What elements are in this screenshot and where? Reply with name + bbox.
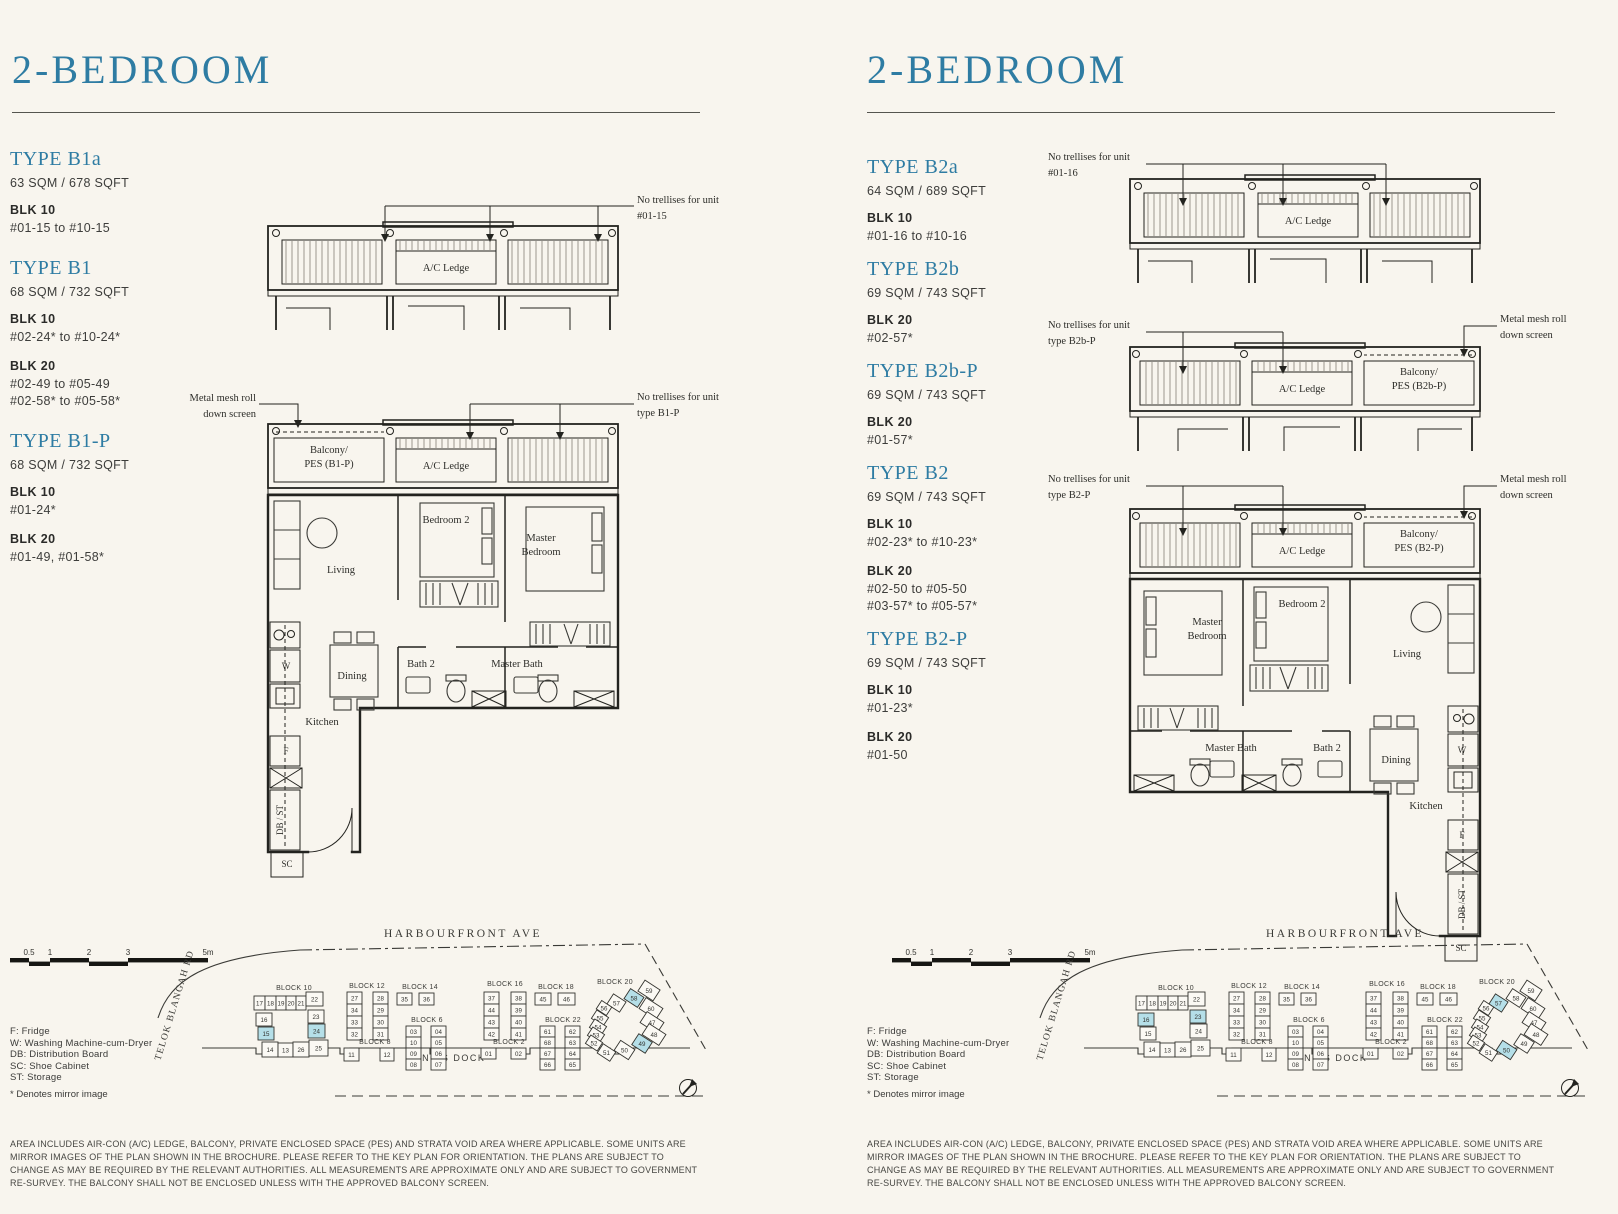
legend-line: ST: Storage xyxy=(10,1072,152,1084)
keyplan-unit-number: 60 xyxy=(1530,1006,1537,1013)
keyplan-block-label: BLOCK 2 xyxy=(493,1039,525,1046)
keyplan-block-label: BLOCK 20 xyxy=(597,979,633,986)
keyplan-unit-number: 09 xyxy=(1292,1051,1299,1058)
keyplan-unit-number: 46 xyxy=(563,996,570,1003)
keyplan-unit-number: 44 xyxy=(1370,1007,1377,1014)
room-label-master-bath: Master Bath xyxy=(1205,743,1257,754)
room-label-balcony: Balcony/ xyxy=(1400,529,1438,540)
room-label-balcony: Balcony/ xyxy=(1400,367,1438,378)
keyplan-unit-number: 21 xyxy=(298,1000,305,1007)
keyplan-unit-number: 31 xyxy=(1259,1031,1266,1038)
keyplan-unit-number: 35 xyxy=(1283,996,1290,1003)
keyplan-unit-number: 66 xyxy=(544,1062,551,1069)
keyplan-unit-number: 65 xyxy=(569,1062,576,1069)
keyplan-unit-number: 62 xyxy=(569,1029,576,1036)
room-label-kitchen: Kitchen xyxy=(305,717,339,728)
keyplan-unit-number: 11 xyxy=(348,1052,355,1059)
keyplan-block-label: BLOCK 10 xyxy=(276,985,312,992)
keyplan-unit-number: 24 xyxy=(1195,1028,1202,1035)
keyplan-unit-number: 67 xyxy=(1426,1051,1433,1058)
keyplan-unit-number: 12 xyxy=(1266,1052,1273,1059)
page-2bedroom-b1: 2-BEDROOM TYPE B1a63 SQM / 678 SQFTBLK 1… xyxy=(0,0,809,1214)
keyplan-unit-number: 27 xyxy=(351,995,358,1002)
room-label-balcony: Balcony/ xyxy=(310,445,348,456)
keyplan-unit-number: 14 xyxy=(1149,1047,1156,1054)
room-label-fridge: F xyxy=(1459,830,1464,840)
keyplan-unit-number: 01 xyxy=(485,1051,492,1058)
legend-line: W: Washing Machine-cum-Dryer xyxy=(10,1038,152,1050)
keyplan-unit-number: 67 xyxy=(544,1051,551,1058)
keyplan-unit-number: 23 xyxy=(1195,1014,1202,1021)
legend-line: F: Fridge xyxy=(10,1026,152,1038)
keyplan-block-label: BLOCK 8 xyxy=(1241,1039,1273,1046)
keyplan-unit-number: 68 xyxy=(544,1040,551,1047)
room-label-master: Master xyxy=(526,533,556,544)
keyplan-unit-number: 21 xyxy=(1180,1000,1187,1007)
keyplan-unit-number: 45 xyxy=(540,996,547,1003)
room-label-balcony-pes: PES (B2-P) xyxy=(1394,543,1444,554)
keyplan-unit-number: 28 xyxy=(377,995,384,1002)
keyplan-block-label: BLOCK 22 xyxy=(545,1017,581,1024)
legend-line: ST: Storage xyxy=(867,1072,1009,1084)
room-label-master-bedroom: Bedroom xyxy=(1187,631,1226,642)
note-no-trellis: No trellises for unit xyxy=(1048,474,1130,485)
plan-fragment-b1a: No trellises for unit #01-15 A/C Ledge xyxy=(268,195,719,330)
room-label-master-bath: Master Bath xyxy=(491,659,543,670)
room-label-ac-ledge: A/C Ledge xyxy=(423,461,470,472)
keyplan-unit-number: 26 xyxy=(298,1047,305,1054)
keyplan-unit-number: 40 xyxy=(1397,1019,1404,1026)
room-label-fridge: F xyxy=(283,746,288,756)
keyplan-unit-number: 20 xyxy=(288,1000,295,1007)
keyplan-block-label: BLOCK 2 xyxy=(1375,1039,1407,1046)
keyplan-unit-number: 13 xyxy=(282,1047,289,1054)
keyplan-unit-number: 43 xyxy=(1370,1019,1377,1026)
keyplan-block-label: BLOCK 10 xyxy=(1158,985,1194,992)
room-label-living: Living xyxy=(1393,649,1422,660)
mirror-image-note: * Denotes mirror image xyxy=(10,1089,108,1100)
keyplan-block-label: BLOCK 18 xyxy=(1420,984,1456,991)
room-label-kitchen: Kitchen xyxy=(1409,801,1443,812)
legend-line: DB: Distribution Board xyxy=(10,1049,152,1061)
fixture-legend: F: Fridge W: Washing Machine-cum-Dryer D… xyxy=(867,1026,1009,1084)
note-no-trellis: No trellises for unit xyxy=(1048,320,1130,331)
disclaimer-text: AREA INCLUDES AIR-CON (A/C) LEDGE, BALCO… xyxy=(867,1138,1563,1190)
keyplan-unit-number: 22 xyxy=(1193,996,1200,1003)
keyplan-unit-number: 59 xyxy=(646,988,653,995)
keyplan-unit-number: 24 xyxy=(313,1028,320,1035)
keyplan-unit-number: 40 xyxy=(515,1019,522,1026)
room-label-bath2: Bath 2 xyxy=(407,659,435,670)
keyplan-unit-number: 08 xyxy=(410,1062,417,1069)
keyplan-unit-number: 26 xyxy=(1180,1047,1187,1054)
note-no-trellis-type: type B2-P xyxy=(1048,490,1090,501)
keyplan-unit-number: 38 xyxy=(1397,995,1404,1002)
keyplan-unit-number: 08 xyxy=(1292,1062,1299,1069)
keyplan-unit-number: 61 xyxy=(544,1029,551,1036)
keyplan-unit-number: 07 xyxy=(1317,1062,1324,1069)
keyplan-block-label: BLOCK 16 xyxy=(487,981,523,988)
keyplan-unit-number: 18 xyxy=(267,1000,274,1007)
room-label-balcony-pes: PES (B1-P) xyxy=(304,459,354,470)
keyplan-unit-number: 36 xyxy=(1305,996,1312,1003)
keyplan-unit-number: 27 xyxy=(1233,995,1240,1002)
keyplan-block-label: BLOCK 8 xyxy=(359,1039,391,1046)
room-label-dining: Dining xyxy=(1381,755,1411,766)
keyplan-unit-number: 39 xyxy=(1397,1007,1404,1014)
keyplan-unit-number: 41 xyxy=(515,1031,522,1038)
keyplan-unit-number: 39 xyxy=(515,1007,522,1014)
keyplan-unit-number: 02 xyxy=(1397,1051,1404,1058)
room-label-bath2: Bath 2 xyxy=(1313,743,1341,754)
room-label-ac-ledge: A/C Ledge xyxy=(423,263,470,274)
room-label-shoe-cabinet: SC xyxy=(281,859,292,869)
room-label-balcony-pes: PES (B2b-P) xyxy=(1392,381,1447,392)
room-label-shoe-cabinet: SC xyxy=(1455,943,1466,953)
room-label-bedroom2: Bedroom 2 xyxy=(423,515,470,526)
keyplan-unit-number: 20 xyxy=(1170,1000,1177,1007)
keyplan-unit-number: 04 xyxy=(435,1029,442,1036)
keyplan-unit-number: 19 xyxy=(1160,1000,1167,1007)
note-no-trellis-unit: #01-15 xyxy=(637,211,667,222)
keyplan-unit-number: 60 xyxy=(648,1006,655,1013)
note-no-trellis-type: type B2b-P xyxy=(1048,336,1096,347)
keyplan-unit-number: 34 xyxy=(351,1007,358,1014)
keyplan-unit-number: 23 xyxy=(313,1014,320,1021)
disclaimer-text: AREA INCLUDES AIR-CON (A/C) LEDGE, BALCO… xyxy=(10,1138,706,1190)
note-mesh-screen: Metal mesh roll xyxy=(190,393,257,404)
keyplan-block-label: BLOCK 6 xyxy=(411,1017,443,1024)
keyplan-unit-number: 31 xyxy=(377,1031,384,1038)
note-mesh-screen: down screen xyxy=(1500,330,1554,341)
keyplan-unit-number: 17 xyxy=(1138,1000,1145,1007)
keyplan-unit-number: 57 xyxy=(1495,1000,1502,1007)
fixture-legend: F: Fridge W: Washing Machine-cum-Dryer D… xyxy=(10,1026,152,1084)
room-label-dbst: DB / ST xyxy=(275,804,285,835)
keyplan-unit-number: 49 xyxy=(1521,1041,1528,1048)
keyplan-block-label: BLOCK 16 xyxy=(1369,981,1405,988)
keyplan-unit-number: 07 xyxy=(435,1062,442,1069)
keyplan-unit-number: 41 xyxy=(1397,1031,1404,1038)
keyplan-unit-number: 51 xyxy=(603,1050,610,1057)
keyplan-unit-number: 18 xyxy=(1149,1000,1156,1007)
brochure-spread: 2-BEDROOM TYPE B1a63 SQM / 678 SQFTBLK 1… xyxy=(0,0,1618,1214)
keyplan-unit-number: 45 xyxy=(1422,996,1429,1003)
keyplan-unit-number: 05 xyxy=(435,1040,442,1047)
keyplan-unit-number: 44 xyxy=(488,1007,495,1014)
keyplan-unit-number: 01 xyxy=(1367,1051,1374,1058)
keyplan-unit-number: 33 xyxy=(351,1019,358,1026)
keyplan-unit-number: 51 xyxy=(1485,1050,1492,1057)
plan-main-b1: Metal mesh roll down screen No trellises… xyxy=(190,392,720,877)
keyplan-unit-number: 16 xyxy=(261,1017,268,1024)
keyplan-unit-number: 30 xyxy=(1259,1019,1266,1026)
keyplan-unit-number: 50 xyxy=(621,1047,628,1054)
keyplan-unit-number: 10 xyxy=(1292,1040,1299,1047)
keyplan-unit-number: 30 xyxy=(377,1019,384,1026)
keyplan-unit-number: 52 xyxy=(1473,1040,1480,1047)
keyplan-unit-number: 10 xyxy=(410,1040,417,1047)
keyplan-unit-number: 16 xyxy=(1143,1017,1150,1024)
keyplan-block-label: BLOCK 22 xyxy=(1427,1017,1463,1024)
note-mesh-screen: Metal mesh roll xyxy=(1500,474,1567,485)
keyplan-unit-number: 35 xyxy=(401,996,408,1003)
room-label-ac-ledge: A/C Ledge xyxy=(1279,384,1326,395)
keyplan-unit-number: 56 xyxy=(1483,1005,1490,1012)
keyplan-unit-number: 52 xyxy=(591,1040,598,1047)
keyplan-unit-number: 05 xyxy=(1317,1040,1324,1047)
keyplan-block-label: BLOCK 12 xyxy=(1231,983,1267,990)
keyplan-unit-number: 68 xyxy=(1426,1040,1433,1047)
keyplan-unit-number: 28 xyxy=(1259,995,1266,1002)
keyplan-unit-number: 19 xyxy=(278,1000,285,1007)
note-no-trellis-type: type B1-P xyxy=(637,408,679,419)
room-label-dining: Dining xyxy=(337,671,367,682)
note-mesh-screen: Metal mesh roll xyxy=(1500,314,1567,325)
plan-fragment-b2b: No trellises for unit type B2b-P Metal m… xyxy=(1048,314,1567,451)
keyplan-unit-number: 06 xyxy=(435,1051,442,1058)
keyplan-unit-number: 37 xyxy=(1370,995,1377,1002)
keyplan-unit-number: 61 xyxy=(1426,1029,1433,1036)
keyplan-unit-number: 63 xyxy=(1451,1040,1458,1047)
note-no-trellis-unit: #01-16 xyxy=(1048,168,1078,179)
plan-main-b2: No trellises for unit type B2-P Metal me… xyxy=(1048,474,1567,961)
page-2bedroom-b2: 2-BEDROOM TYPE B2a64 SQM / 689 SQFTBLK 1… xyxy=(809,0,1618,1214)
keyplan-unit-number: 57 xyxy=(613,1000,620,1007)
keyplan-unit-number: 48 xyxy=(1533,1032,1540,1039)
keyplan-unit-number: 09 xyxy=(410,1051,417,1058)
keyplan-unit-number: 12 xyxy=(384,1052,391,1059)
note-no-trellis: No trellises for unit xyxy=(637,195,719,206)
keyplan-unit-number: 11 xyxy=(1230,1052,1237,1059)
mirror-image-note: * Denotes mirror image xyxy=(867,1089,965,1100)
note-mesh-screen: down screen xyxy=(203,409,257,420)
room-label-master-bedroom: Bedroom xyxy=(521,547,560,558)
keyplan-unit-number: 48 xyxy=(651,1032,658,1039)
room-label-master: Master xyxy=(1192,617,1222,628)
keyplan-unit-number: 64 xyxy=(569,1051,576,1058)
note-no-trellis: No trellises for unit xyxy=(1048,152,1130,163)
keyplan-unit-number: 14 xyxy=(267,1047,274,1054)
legend-line: W: Washing Machine-cum-Dryer xyxy=(867,1038,1009,1050)
room-label-living: Living xyxy=(327,565,356,576)
keyplan-unit-number: 65 xyxy=(1451,1062,1458,1069)
keyplan-unit-number: 43 xyxy=(488,1019,495,1026)
keyplan-block-label: BLOCK 20 xyxy=(1479,979,1515,986)
room-label-ac-ledge: A/C Ledge xyxy=(1285,216,1332,227)
keyplan-unit-number: 29 xyxy=(1259,1007,1266,1014)
keyplan-unit-number: 58 xyxy=(1513,995,1520,1002)
keyplan-unit-number: 13 xyxy=(1164,1047,1171,1054)
keyplan-block-label: BLOCK 14 xyxy=(402,984,438,991)
room-label-dbst: DB / ST xyxy=(1457,888,1467,919)
keyplan-unit-number: 59 xyxy=(1528,988,1535,995)
keyplan-unit-number: 50 xyxy=(1503,1047,1510,1054)
keyplan-unit-number: 46 xyxy=(1445,996,1452,1003)
keyplan-unit-number: 42 xyxy=(488,1031,495,1038)
room-label-washer: W xyxy=(1458,745,1467,755)
keyplan-unit-number: 02 xyxy=(515,1051,522,1058)
keyplan-block-label: BLOCK 14 xyxy=(1284,984,1320,991)
keyplan-unit-number: 04 xyxy=(1317,1029,1324,1036)
keyplan-unit-number: 03 xyxy=(410,1029,417,1036)
legend-line: SC: Shoe Cabinet xyxy=(10,1061,152,1073)
keyplan-unit-number: 15 xyxy=(1145,1031,1152,1038)
keyplan-unit-number: 58 xyxy=(631,995,638,1002)
keyplan-unit-number: 36 xyxy=(423,996,430,1003)
keyplan-unit-number: 15 xyxy=(263,1031,270,1038)
keyplan-unit-number: 63 xyxy=(569,1040,576,1047)
legend-line: DB: Distribution Board xyxy=(867,1049,1009,1061)
keyplan-unit-number: 33 xyxy=(1233,1019,1240,1026)
keyplan-unit-number: 25 xyxy=(315,1045,322,1052)
legend-line: F: Fridge xyxy=(867,1026,1009,1038)
keyplan-unit-number: 06 xyxy=(1317,1051,1324,1058)
keyplan-unit-number: 62 xyxy=(1451,1029,1458,1036)
keyplan-unit-number: 64 xyxy=(1451,1051,1458,1058)
keyplan-unit-number: 29 xyxy=(377,1007,384,1014)
keyplan-unit-number: 34 xyxy=(1233,1007,1240,1014)
room-label-ac-ledge: A/C Ledge xyxy=(1279,546,1326,557)
note-no-trellis: No trellises for unit xyxy=(637,392,719,403)
keyplan-unit-number: 17 xyxy=(256,1000,263,1007)
keyplan-unit-number: 32 xyxy=(1233,1031,1240,1038)
room-label-bedroom2: Bedroom 2 xyxy=(1279,599,1326,610)
keyplan-unit-number: 38 xyxy=(515,995,522,1002)
keyplan-block-label: BLOCK 6 xyxy=(1293,1017,1325,1024)
plan-fragment-b2a: No trellises for unit #01-16 A/C Ledge xyxy=(1048,152,1480,283)
note-mesh-screen: down screen xyxy=(1500,490,1554,501)
room-label-washer: W xyxy=(282,661,291,671)
keyplan-unit-number: 25 xyxy=(1197,1045,1204,1052)
keyplan-unit-number: 42 xyxy=(1370,1031,1377,1038)
keyplan-unit-number: 49 xyxy=(639,1041,646,1048)
keyplan-unit-number: 22 xyxy=(311,996,318,1003)
legend-line: SC: Shoe Cabinet xyxy=(867,1061,1009,1073)
keyplan-unit-number: 56 xyxy=(601,1005,608,1012)
keyplan-block-label: BLOCK 18 xyxy=(538,984,574,991)
keyplan-unit-number: 32 xyxy=(351,1031,358,1038)
keyplan-unit-number: 03 xyxy=(1292,1029,1299,1036)
keyplan-unit-number: 37 xyxy=(488,995,495,1002)
keyplan-block-label: BLOCK 12 xyxy=(349,983,385,990)
keyplan-unit-number: 66 xyxy=(1426,1062,1433,1069)
